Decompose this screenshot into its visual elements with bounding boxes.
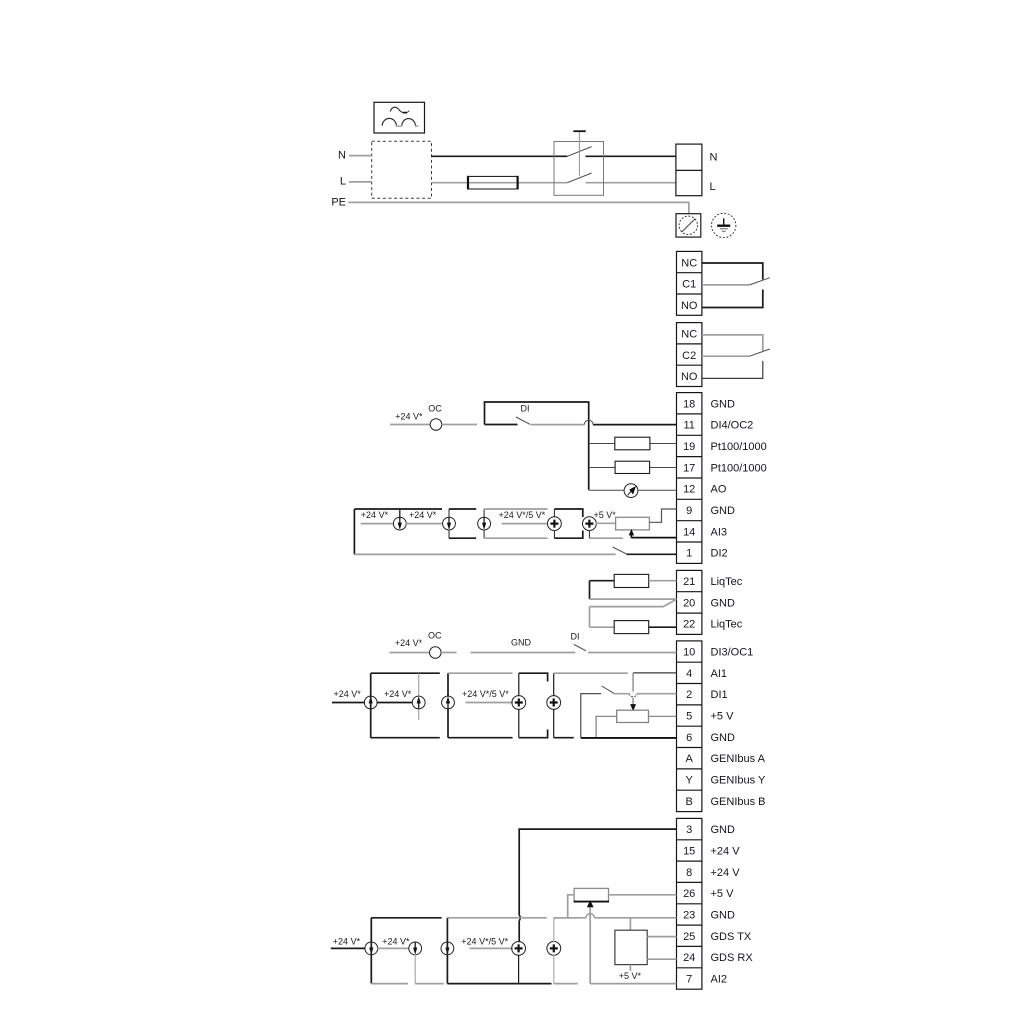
svg-text:5: 5 <box>686 711 692 723</box>
svg-text:+5 V: +5 V <box>711 711 735 723</box>
svg-text:+24 V*: +24 V* <box>395 412 423 422</box>
svg-text:AI2: AI2 <box>711 974 728 986</box>
svg-text:OC: OC <box>428 631 442 641</box>
svg-text:+24 V*: +24 V* <box>382 936 410 946</box>
svg-text:+24 V*: +24 V* <box>334 689 362 699</box>
svg-text:GND: GND <box>711 398 736 410</box>
svg-text:11: 11 <box>683 420 694 432</box>
svg-text:C2: C2 <box>682 350 696 362</box>
svg-text:+24 V*/5 V*: +24 V*/5 V* <box>461 936 508 946</box>
svg-text:2: 2 <box>686 689 692 701</box>
svg-text:C1: C1 <box>682 279 696 291</box>
svg-text:+24 V*: +24 V* <box>333 936 361 946</box>
svg-text:PE: PE <box>331 197 346 209</box>
svg-text:L: L <box>710 181 716 193</box>
svg-text:24: 24 <box>683 952 695 964</box>
svg-text:7: 7 <box>686 974 692 986</box>
svg-text:GDS RX: GDS RX <box>711 952 754 964</box>
svg-text:8: 8 <box>686 867 692 879</box>
svg-text:LiqTec: LiqTec <box>711 576 743 588</box>
svg-text:19: 19 <box>683 441 695 453</box>
svg-text:+24 V*: +24 V* <box>409 510 437 520</box>
svg-text:+5 V*: +5 V* <box>594 510 617 520</box>
svg-text:Pt100/1000: Pt100/1000 <box>711 441 767 453</box>
svg-text:N: N <box>338 150 346 162</box>
svg-text:Pt100/1000: Pt100/1000 <box>711 462 767 474</box>
svg-text:GENIbus Y: GENIbus Y <box>711 775 766 787</box>
svg-text:DI2: DI2 <box>711 548 728 560</box>
svg-text:GND: GND <box>711 597 736 609</box>
svg-text:4: 4 <box>686 668 692 680</box>
svg-text:+24 V*/5 V*: +24 V*/5 V* <box>462 689 509 699</box>
svg-text:DI1: DI1 <box>711 689 728 701</box>
svg-text:6: 6 <box>686 732 692 744</box>
svg-text:AO: AO <box>711 484 727 496</box>
svg-text:NO: NO <box>681 300 698 312</box>
svg-text:AI3: AI3 <box>711 526 728 538</box>
svg-text:DI: DI <box>521 404 530 414</box>
svg-text:DI4/OC2: DI4/OC2 <box>711 420 754 432</box>
svg-text:+24 V: +24 V <box>711 867 741 879</box>
svg-text:GENIbus A: GENIbus A <box>711 753 766 765</box>
svg-text:+5 V: +5 V <box>711 888 735 900</box>
svg-text:GND: GND <box>511 638 532 648</box>
svg-text:12: 12 <box>683 484 695 496</box>
svg-text:22: 22 <box>683 619 695 631</box>
svg-text:21: 21 <box>683 576 695 588</box>
svg-text:L: L <box>340 176 346 188</box>
svg-text:15: 15 <box>683 845 695 857</box>
svg-text:+24 V*: +24 V* <box>384 689 412 699</box>
svg-text:GND: GND <box>711 824 736 836</box>
svg-text:1: 1 <box>686 548 692 560</box>
svg-text:10: 10 <box>683 647 695 659</box>
svg-text:LiqTec: LiqTec <box>711 619 743 631</box>
svg-text:20: 20 <box>683 597 695 609</box>
svg-text:N: N <box>710 151 718 163</box>
svg-text:17: 17 <box>683 462 695 474</box>
svg-text:23: 23 <box>683 909 695 921</box>
svg-text:+24 V*: +24 V* <box>361 510 389 520</box>
svg-text:+5 V*: +5 V* <box>619 971 642 981</box>
svg-text:GND: GND <box>711 732 736 744</box>
svg-text:NC: NC <box>681 329 697 341</box>
svg-text:AI1: AI1 <box>711 668 728 680</box>
svg-text:DI3/OC1: DI3/OC1 <box>711 647 754 659</box>
svg-text:NO: NO <box>681 371 698 383</box>
svg-text:26: 26 <box>683 888 695 900</box>
svg-text:18: 18 <box>683 398 695 410</box>
svg-text:25: 25 <box>683 931 695 943</box>
svg-text:GENIbus B: GENIbus B <box>711 796 766 808</box>
svg-text:NC: NC <box>681 257 697 269</box>
svg-text:+24 V: +24 V <box>711 845 741 857</box>
svg-text:GND: GND <box>711 505 736 517</box>
svg-text:OC: OC <box>428 404 442 414</box>
svg-text:+24 V*/5 V*: +24 V*/5 V* <box>499 510 546 520</box>
svg-text:DI: DI <box>571 632 580 642</box>
svg-text:GDS TX: GDS TX <box>711 931 752 943</box>
svg-text:+24 V*: +24 V* <box>395 638 423 648</box>
svg-text:9: 9 <box>686 505 692 517</box>
svg-text:B: B <box>686 796 693 808</box>
svg-text:GND: GND <box>711 909 736 921</box>
svg-text:14: 14 <box>683 526 695 538</box>
svg-text:3: 3 <box>686 824 692 836</box>
svg-text:Y: Y <box>686 775 694 787</box>
svg-text:A: A <box>686 753 694 765</box>
